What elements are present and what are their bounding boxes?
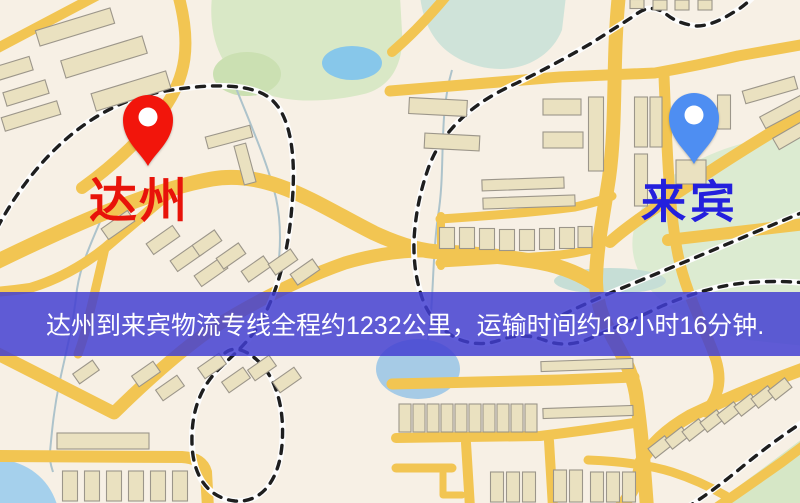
map-screenshot: 达州 来宾 达州到来宾物流专线全程约1232公里，运输时间约18小时16分钟. bbox=[0, 0, 800, 503]
origin-location-pin-icon[interactable] bbox=[120, 92, 176, 170]
map-background bbox=[0, 0, 800, 503]
route-summary-banner: 达州到来宾物流专线全程约1232公里，运输时间约18小时16分钟. bbox=[0, 292, 800, 356]
origin-city-label: 达州 bbox=[89, 177, 189, 225]
destination-location-pin-icon[interactable] bbox=[666, 90, 722, 168]
destination-city-label: 来宾 bbox=[641, 180, 739, 225]
route-summary-text: 达州到来宾物流专线全程约1232公里，运输时间约18小时16分钟. bbox=[46, 306, 764, 342]
